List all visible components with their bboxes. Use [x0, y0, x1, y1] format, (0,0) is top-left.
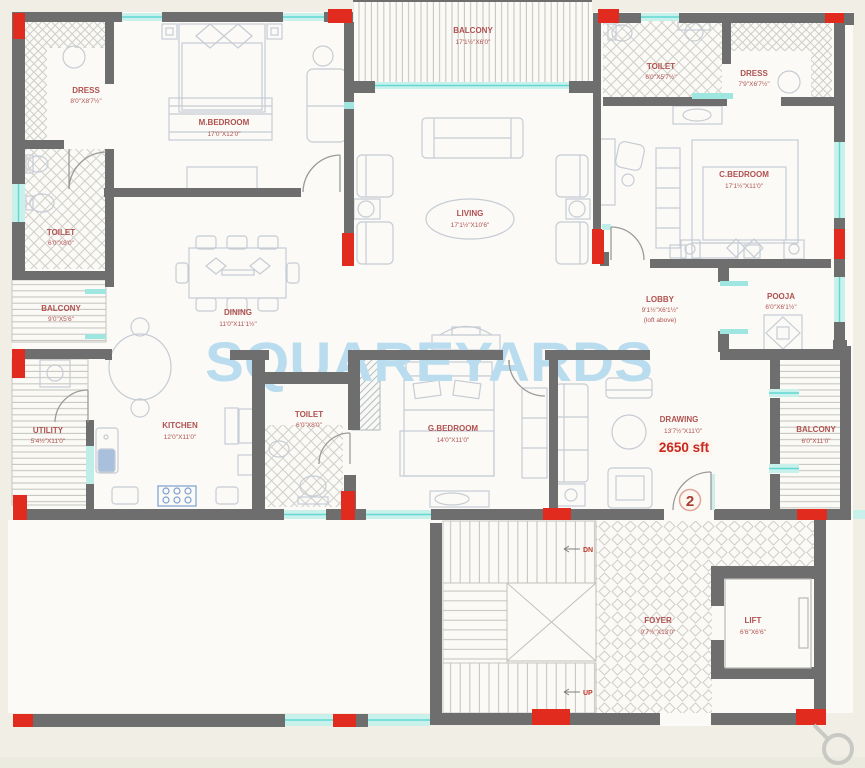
svg-text:8'0"X8'7½": 8'0"X8'7½" — [70, 97, 102, 105]
svg-text:9'0"X5'6": 9'0"X5'6" — [48, 316, 75, 323]
svg-text:KITCHEN: KITCHEN — [162, 421, 198, 430]
svg-text:FOYER: FOYER — [644, 616, 672, 625]
svg-text:POOJA: POOJA — [767, 292, 795, 301]
svg-text:C.BEDROOM: C.BEDROOM — [719, 170, 769, 179]
svg-text:12'0"X11'0": 12'0"X11'0" — [164, 434, 197, 441]
svg-text:BALCONY: BALCONY — [453, 26, 493, 35]
svg-text:7'9"X6'7½": 7'9"X6'7½" — [738, 80, 770, 88]
svg-text:(loft above): (loft above) — [644, 317, 677, 324]
svg-text:6'0"X6'1½": 6'0"X6'1½" — [765, 303, 797, 311]
svg-text:14'0"X11'0": 14'0"X11'0" — [437, 437, 470, 444]
svg-text:TOILET: TOILET — [647, 62, 675, 71]
svg-text:9'7½"X13'0": 9'7½"X13'0" — [641, 628, 677, 636]
svg-text:17'0"X12'0": 17'0"X12'0" — [207, 131, 241, 138]
svg-text:13'7½"X11'0": 13'7½"X11'0" — [664, 427, 703, 435]
svg-text:DN: DN — [583, 547, 593, 554]
svg-text:17'1½"X10'6": 17'1½"X10'6" — [451, 221, 490, 229]
svg-text:UP: UP — [583, 690, 593, 697]
svg-text:6'0"X8'0": 6'0"X8'0" — [48, 240, 75, 247]
svg-text:LIVING: LIVING — [457, 209, 484, 218]
svg-text:11'0"X11'1½": 11'0"X11'1½" — [219, 320, 257, 328]
svg-text:2: 2 — [686, 493, 694, 510]
svg-text:G.BEDROOM: G.BEDROOM — [428, 424, 479, 433]
svg-text:DRESS: DRESS — [72, 86, 100, 95]
svg-text:TOILET: TOILET — [47, 228, 75, 237]
svg-text:LOBBY: LOBBY — [646, 295, 675, 304]
svg-text:BALCONY: BALCONY — [796, 425, 836, 434]
svg-text:BALCONY: BALCONY — [41, 304, 81, 313]
svg-text:5'4½"X11'0": 5'4½"X11'0" — [31, 437, 66, 445]
svg-text:17'1½"X6'0": 17'1½"X6'0" — [456, 38, 492, 46]
svg-text:DRAWING: DRAWING — [660, 415, 699, 424]
svg-text:6'0"X8'0": 6'0"X8'0" — [296, 422, 323, 429]
svg-text:LIFT: LIFT — [745, 616, 762, 625]
svg-text:2650 sft: 2650 sft — [659, 440, 710, 455]
svg-text:9'1½"X6'1½": 9'1½"X6'1½" — [642, 306, 679, 314]
svg-text:6'0"X11'0": 6'0"X11'0" — [801, 438, 831, 445]
svg-text:17'1½"X11'0": 17'1½"X11'0" — [725, 182, 764, 190]
svg-text:UTILITY: UTILITY — [33, 426, 64, 435]
svg-text:M.BEDROOM: M.BEDROOM — [199, 118, 250, 127]
svg-text:6'0"X5'7½": 6'0"X5'7½" — [645, 73, 677, 81]
svg-text:DINING: DINING — [224, 308, 252, 317]
svg-text:6'6"X6'6": 6'6"X6'6" — [740, 629, 767, 636]
svg-text:TOILET: TOILET — [295, 410, 323, 419]
svg-text:DRESS: DRESS — [740, 69, 768, 78]
